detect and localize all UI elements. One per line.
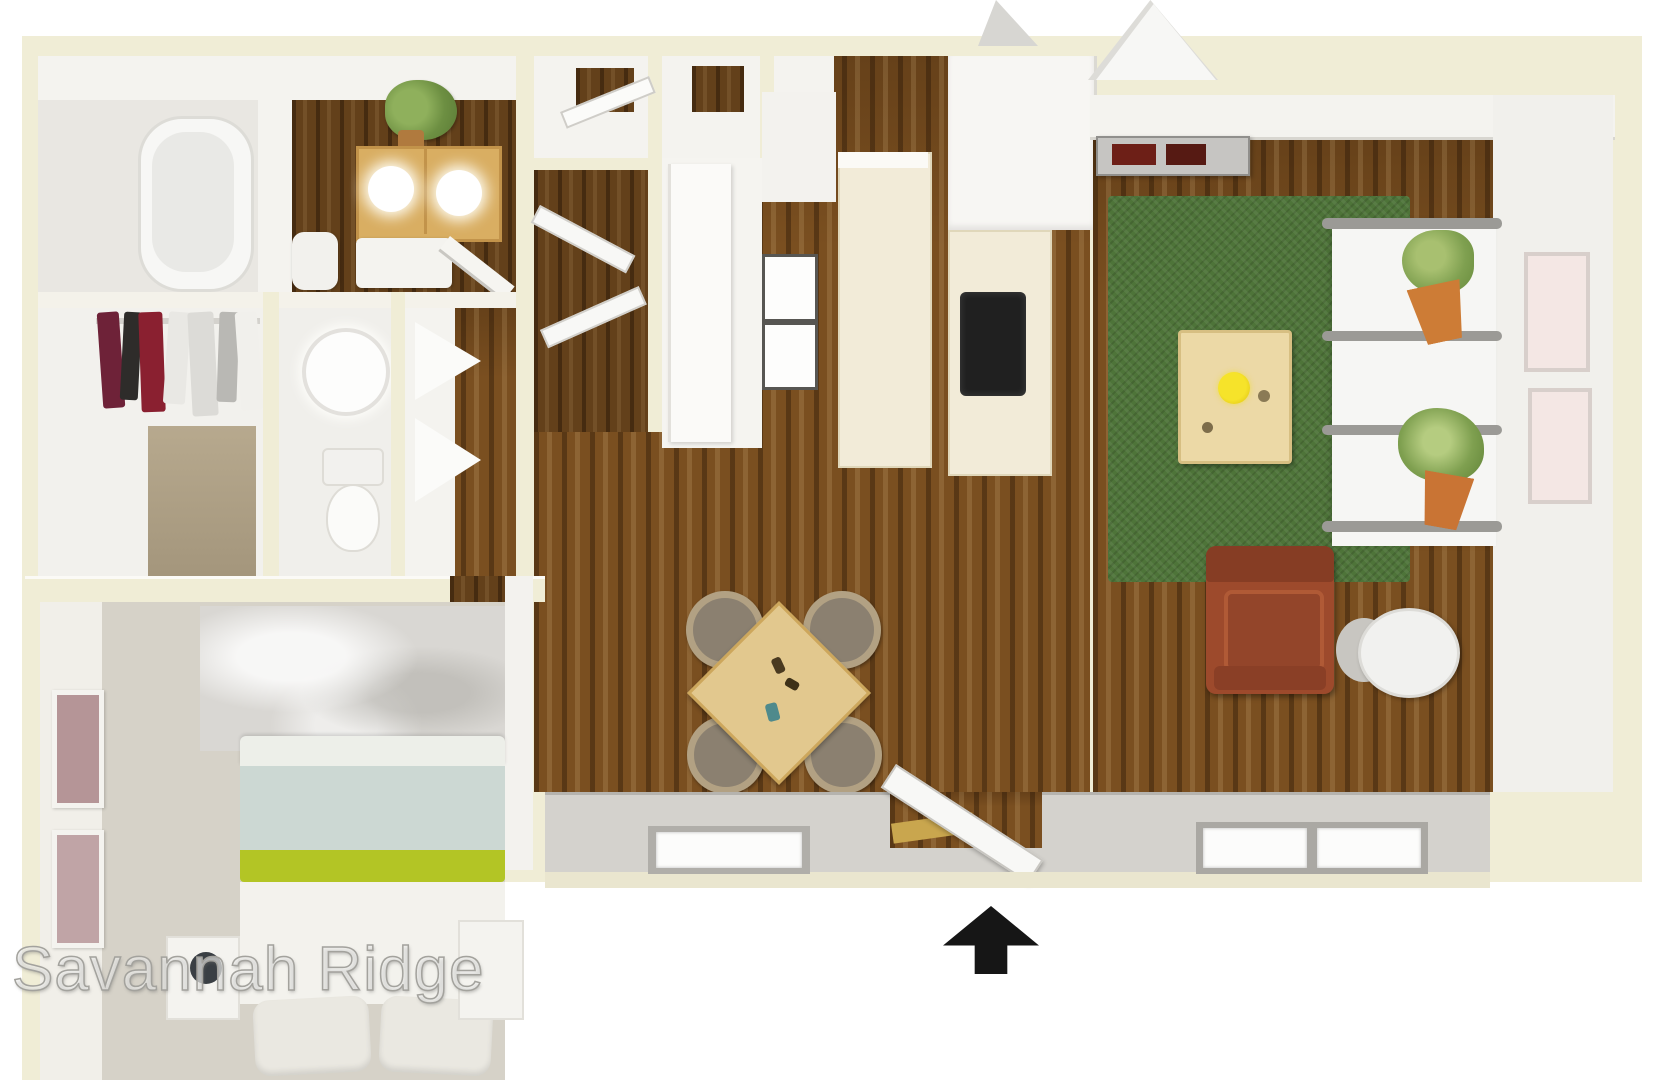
nook-bench	[356, 238, 452, 288]
round-sink	[302, 328, 390, 416]
plate-left	[368, 166, 414, 212]
closet3-right-wall	[648, 158, 662, 432]
bathtub-basin	[152, 132, 234, 272]
bed-stripe-lime	[240, 850, 505, 882]
table-item-teal	[765, 702, 781, 722]
coffee-table-item2	[1202, 422, 1213, 433]
armchair	[1206, 546, 1334, 694]
plate-right	[436, 170, 482, 216]
bedroom-area-rug	[200, 606, 505, 751]
rack-bar-1	[1322, 218, 1502, 229]
armchair-cushion	[1224, 590, 1324, 672]
bed-footboard	[240, 736, 505, 766]
floor-plan-image: Savannah Ridge	[0, 0, 1666, 1080]
tv-screen	[1112, 144, 1156, 165]
bedroom-east-wall	[505, 576, 533, 870]
bath-linen-divider	[391, 292, 405, 576]
dining-window-pane	[656, 832, 802, 868]
toilet-bowl	[326, 484, 380, 552]
bed-blanket-blue	[240, 766, 505, 850]
living-window-pane-right	[1317, 828, 1421, 868]
hall-closet2-floor	[692, 66, 744, 112]
dining-window-frame	[648, 826, 810, 874]
table-item-dark	[770, 656, 786, 675]
watermark: Savannah Ridge	[12, 934, 484, 1005]
cooktop	[960, 292, 1026, 396]
tall-cabinet	[668, 164, 731, 442]
bed-pillow-left	[252, 995, 372, 1077]
hall-closet-divider1	[648, 56, 662, 160]
bottom-wall-trim	[545, 872, 1490, 888]
wall-art-bedroom-top	[52, 690, 104, 808]
nook-chair	[292, 232, 338, 290]
bathroom-nook-divider-wall	[258, 100, 292, 292]
bedroom-doorway	[450, 576, 512, 602]
dryer	[762, 322, 818, 390]
side-table	[1358, 608, 1460, 698]
nook-table-divider	[424, 148, 427, 234]
armchair-front	[1214, 666, 1326, 690]
rack-bar-2	[1322, 331, 1502, 341]
roof-projection-small	[978, 0, 1038, 46]
living-window-pane-left	[1203, 828, 1307, 868]
flower-vase	[1218, 372, 1250, 404]
refrigerator	[948, 56, 1097, 230]
entry-north-arrow	[943, 906, 1039, 974]
closet-bath-divider	[263, 292, 279, 576]
hanging-clothes	[100, 312, 260, 422]
toilet-tank	[322, 448, 384, 486]
coffee-table-item1	[1258, 390, 1270, 402]
closet-wood-floor-patch	[148, 426, 256, 576]
rack-bar-4	[1322, 521, 1502, 532]
av-component	[1166, 144, 1206, 165]
living-window-frame	[1196, 822, 1428, 874]
kitchen-island-counter	[838, 152, 932, 468]
armchair-back	[1206, 546, 1334, 582]
wall-art-bedroom-bottom	[52, 830, 104, 948]
table-item-dark2	[784, 677, 801, 692]
tv-console	[1096, 136, 1250, 176]
washer	[762, 254, 818, 322]
kitchen-entry-wall	[762, 92, 836, 202]
wall-art-right-bottom	[1528, 388, 1592, 504]
wall-art-right-top	[1524, 252, 1590, 372]
kitchen-island-cap	[838, 152, 928, 168]
